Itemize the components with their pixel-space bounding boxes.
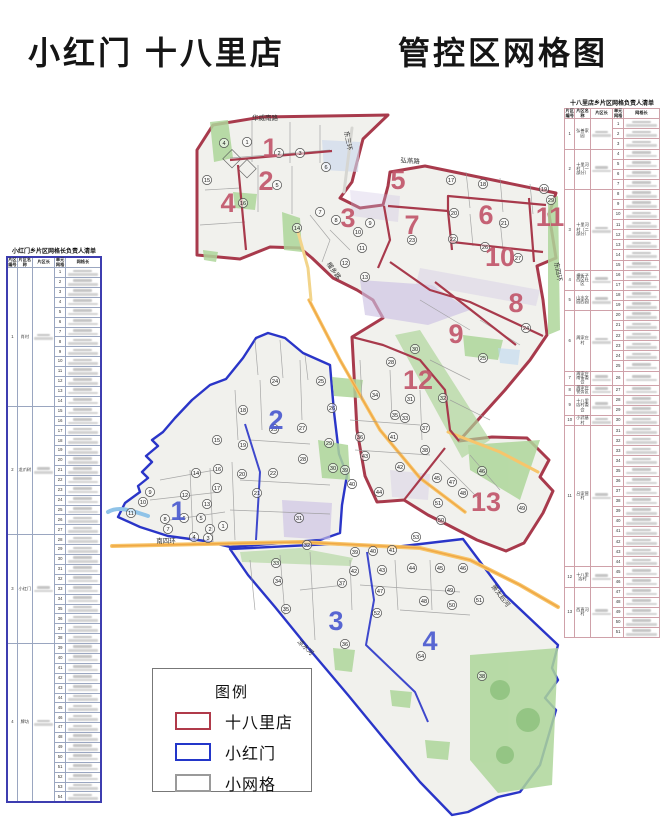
redacted-phone [626, 623, 657, 626]
map-label: 14 [294, 226, 300, 232]
table-row: 9十八里店村委会28 [565, 395, 660, 405]
unit-grid-number-cell: 36 [613, 476, 623, 486]
redacted-phone [626, 185, 657, 188]
grid-leader-cell [623, 149, 659, 159]
map-label: 31 [407, 397, 413, 403]
redacted-phone [68, 738, 98, 741]
redacted-phone [592, 134, 612, 137]
grid-leader-cell [623, 628, 659, 638]
redacted-phone [68, 560, 98, 563]
redacted-phone [68, 797, 98, 800]
map-label: 3 [206, 536, 209, 542]
redacted-name [73, 467, 92, 470]
grid-leader-cell [65, 634, 101, 644]
redacted-name [73, 596, 92, 599]
xiaohongmen-grid-leader-table: 小红门乡片区网格长负责人清单 片区编号片区名称片区长单元网格网格长1肖村1234… [6, 246, 102, 803]
grid-leader-cell [623, 220, 659, 230]
unit-grid-number-cell: 11 [55, 367, 65, 377]
grid-leader-cell [623, 486, 659, 496]
redacted-phone [68, 718, 98, 721]
redacted-phone [626, 144, 657, 147]
grid-leader-cell [65, 475, 101, 485]
redacted-phone [626, 155, 657, 158]
grid-leader-cell [65, 337, 101, 347]
redacted-name [73, 517, 92, 520]
redacted-name [73, 299, 92, 302]
unit-grid-number-cell: 22 [55, 475, 65, 485]
unit-grid-number-cell: 4 [55, 297, 65, 307]
redacted-name [632, 343, 651, 346]
map-label: 17 [214, 486, 220, 492]
map-label: 1 [221, 524, 224, 530]
redacted-name [632, 212, 651, 215]
map-label: 2 [268, 405, 283, 435]
redacted-phone [626, 573, 657, 576]
small-grid-swatch-icon [175, 774, 211, 792]
zone-leader-cell [590, 426, 613, 567]
column-header: 网格长 [65, 257, 101, 268]
redacted-phone [626, 532, 657, 535]
redacted-phone [68, 412, 98, 415]
zone-name-cell: 十八里店村 [575, 567, 590, 587]
legend-item-small-grid: 小网格 [175, 771, 311, 795]
zone-leader-cell [32, 644, 55, 803]
unit-grid-number-cell: 1 [55, 268, 65, 278]
redacted-name [37, 334, 50, 337]
grid-leader-cell [65, 525, 101, 535]
redacted-phone [626, 235, 657, 238]
redacted-phone [68, 362, 98, 365]
redacted-phone [68, 313, 98, 316]
grid-leader-cell [65, 752, 101, 762]
redacted-phone [626, 225, 657, 228]
redacted-name [632, 549, 651, 552]
redacted-phone [626, 461, 657, 464]
grid-leader-cell [65, 762, 101, 772]
redacted-name [632, 559, 651, 562]
redacted-name [632, 387, 651, 390]
unit-grid-number-cell: 51 [55, 762, 65, 772]
zone-number-cell: 12 [565, 567, 575, 587]
redacted-name [73, 329, 92, 332]
grid-leader-cell [65, 386, 101, 396]
redacted-name [595, 277, 608, 280]
redacted-name [595, 297, 608, 300]
grid-leader-cell [623, 240, 659, 250]
zone-number-cell: 6 [565, 311, 575, 372]
map-label: 27 [515, 256, 521, 262]
map-label: 22 [270, 471, 276, 477]
redacted-phone [34, 337, 53, 340]
redacted-name [73, 309, 92, 312]
map-label: 40 [370, 549, 376, 555]
table-row: 13西直河村47 [565, 587, 660, 597]
zone-number-cell: 1 [7, 268, 17, 406]
redacted-phone [626, 512, 657, 515]
map-label: 8 [334, 218, 337, 224]
table-row: 4牌坊39 [7, 644, 101, 654]
map-label: 20 [451, 211, 457, 217]
zone-number-cell: 9 [565, 395, 575, 415]
redacted-name [632, 222, 651, 225]
table-row: 3小红门28 [7, 535, 101, 545]
grid-leader-table: 片区编号片区名称片区长单元网格网格长1弘善家园1232十里河村（一部分）4567… [564, 108, 660, 638]
redacted-phone [626, 472, 657, 475]
redacted-name [632, 458, 651, 461]
map-label: 35 [392, 413, 398, 419]
redacted-phone [626, 306, 657, 309]
redacted-phone [68, 333, 98, 336]
zone-name-cell: 小红门 [17, 535, 32, 644]
map-label: 46 [479, 469, 485, 475]
grid-leader-cell [623, 311, 659, 321]
unit-grid-number-cell: 41 [613, 527, 623, 537]
zone-leader-cell [590, 189, 613, 270]
unit-grid-number-cell: 31 [613, 426, 623, 436]
zone-number-cell: 4 [7, 644, 17, 803]
unit-grid-number-cell: 32 [613, 436, 623, 446]
grid-leader-cell [65, 446, 101, 456]
redacted-phone [68, 778, 98, 781]
redacted-phone [626, 346, 657, 349]
redacted-phone [626, 245, 657, 248]
map-label: 20 [239, 472, 245, 478]
redacted-phone [68, 501, 98, 504]
redacted-name [632, 323, 651, 326]
table-row: 8周家庄警务区27 [565, 385, 660, 395]
unit-grid-number-cell: 35 [55, 604, 65, 614]
unit-grid-number-cell: 47 [613, 587, 623, 597]
redacted-phone [68, 273, 98, 276]
unit-grid-number-cell: 6 [613, 169, 623, 179]
redacted-phone [68, 342, 98, 345]
map-label: 45 [434, 476, 440, 482]
redacted-phone [626, 401, 657, 404]
unit-grid-number-cell: 44 [613, 557, 623, 567]
map-label: 6 [324, 165, 327, 171]
redacted-phone [68, 550, 98, 553]
redacted-name [37, 720, 50, 723]
zone-name-cell: 西直河村 [575, 587, 590, 637]
grid-leader-cell [65, 564, 101, 574]
redacted-name [73, 319, 92, 322]
redacted-phone [626, 286, 657, 289]
redacted-name [73, 527, 92, 530]
map-label: 15 [204, 178, 210, 184]
redacted-phone [68, 689, 98, 692]
unit-grid-number-cell: 26 [613, 371, 623, 385]
unit-grid-number-cell: 29 [55, 545, 65, 555]
redacted-phone [68, 352, 98, 355]
grid-leader-cell [65, 624, 101, 634]
redacted-name [632, 242, 651, 245]
unit-grid-number-cell: 20 [55, 456, 65, 466]
unit-grid-number-cell: 48 [613, 597, 623, 607]
redacted-phone [68, 461, 98, 464]
map-label: 1 [262, 133, 277, 163]
redacted-name [73, 636, 92, 639]
redacted-name [632, 488, 651, 491]
zone-name-cell: 牌坊 [17, 644, 32, 803]
title-township-names: 小红门 十八里店 [28, 28, 285, 74]
grid-leader-cell [65, 584, 101, 594]
redacted-phone [68, 491, 98, 494]
map-label: 4 [192, 535, 195, 541]
unit-grid-number-cell: 13 [613, 240, 623, 250]
redacted-name [73, 388, 92, 391]
unit-grid-number-cell: 28 [613, 395, 623, 405]
redacted-phone [68, 323, 98, 326]
grid-leader-cell [623, 159, 659, 169]
grid-leader-cell [623, 395, 659, 405]
redacted-name [632, 428, 651, 431]
unit-grid-number-cell: 45 [55, 703, 65, 713]
map-label: 34 [372, 393, 378, 399]
unit-grid-number-cell: 23 [613, 341, 623, 351]
map-label: 31 [296, 516, 302, 522]
redacted-phone [68, 481, 98, 484]
grid-leader-cell [65, 742, 101, 752]
map-label: 18 [240, 408, 246, 414]
grid-leader-cell [623, 617, 659, 627]
map-label: 25 [318, 379, 324, 385]
map-label: 9 [368, 221, 371, 227]
map-label: 42 [397, 465, 403, 471]
column-header: 片区编号 [565, 109, 575, 119]
redacted-name [73, 547, 92, 550]
redacted-name [632, 579, 651, 582]
zone-name-cell: 十八里店村委会 [575, 395, 590, 415]
zone-number-cell: 8 [565, 385, 575, 395]
map-label: 22 [450, 237, 456, 243]
grid-leader-cell [623, 210, 659, 220]
map-label: 36 [342, 642, 348, 648]
unit-grid-number-cell: 34 [55, 594, 65, 604]
redacted-name [37, 586, 50, 589]
map-label: 19 [541, 187, 547, 193]
grid-leader-cell [65, 485, 101, 495]
zone-number-cell: 13 [565, 587, 575, 637]
redacted-name [73, 349, 92, 352]
grid-leader-cell [65, 268, 101, 278]
table-row: 6周家庄村20 [565, 311, 660, 321]
table-row: 11吕家营村31 [565, 426, 660, 436]
redacted-name [632, 363, 651, 366]
grid-leader-cell [623, 361, 659, 371]
map-label: 4 [422, 626, 437, 656]
redacted-phone [68, 451, 98, 454]
unit-grid-number-cell: 38 [613, 496, 623, 506]
unit-grid-number-cell: 12 [55, 377, 65, 387]
map-label: 35 [283, 607, 289, 613]
map-label: 29 [326, 441, 332, 447]
redacted-phone [68, 570, 98, 573]
redacted-name [632, 407, 651, 410]
redacted-name [632, 302, 651, 305]
unit-grid-number-cell: 42 [55, 673, 65, 683]
unit-grid-number-cell: 49 [613, 607, 623, 617]
map-label: 51 [476, 598, 482, 604]
map-label: 33 [402, 416, 408, 422]
map-label: 3 [328, 606, 343, 636]
redacted-phone [68, 728, 98, 731]
redacted-phone [592, 230, 612, 233]
unit-grid-number-cell: 49 [55, 742, 65, 752]
zone-number-cell: 3 [565, 189, 575, 270]
redacted-name [73, 507, 92, 510]
redacted-phone [34, 723, 53, 726]
unit-grid-number-cell: 20 [613, 311, 623, 321]
zone-number-cell: 5 [565, 290, 575, 310]
grid-leader-cell [65, 535, 101, 545]
map-label: 24 [272, 379, 278, 385]
unit-grid-number-cell: 50 [55, 752, 65, 762]
redacted-name [73, 764, 92, 767]
redacted-name [73, 537, 92, 540]
redacted-name [73, 497, 92, 500]
redacted-name [73, 675, 92, 678]
unit-grid-number-cell: 40 [613, 517, 623, 527]
redacted-name [595, 493, 608, 496]
redacted-phone [68, 787, 98, 790]
zone-number-cell: 2 [7, 406, 17, 535]
grid-leader-cell [65, 713, 101, 723]
redacted-phone [68, 639, 98, 642]
unit-grid-number-cell: 38 [55, 634, 65, 644]
unit-grid-number-cell: 21 [55, 466, 65, 476]
unit-grid-number-cell: 43 [55, 683, 65, 693]
map-label: 37 [422, 426, 428, 432]
redacted-phone [626, 296, 657, 299]
grid-leader-cell [623, 270, 659, 280]
grid-leader-cell [623, 607, 659, 617]
redacted-name [595, 166, 608, 169]
map-label: 11 [536, 202, 565, 232]
zone-number-cell: 4 [565, 270, 575, 290]
grid-leader-cell [65, 703, 101, 713]
grid-leader-cell [623, 179, 659, 189]
map-label: 15 [214, 438, 220, 444]
unit-grid-number-cell: 13 [55, 386, 65, 396]
redacted-name [73, 725, 92, 728]
unit-grid-number-cell: 5 [613, 159, 623, 169]
map-label: 41 [390, 435, 396, 441]
redacted-phone [592, 379, 612, 382]
grid-leader-cell [623, 300, 659, 310]
unit-grid-number-cell: 24 [613, 351, 623, 361]
grid-leader-cell [65, 594, 101, 604]
unit-grid-number-cell: 4 [613, 149, 623, 159]
grid-leader-cell [623, 577, 659, 587]
zone-leader-cell [590, 311, 613, 372]
redacted-name [73, 715, 92, 718]
map-label: 14 [193, 471, 199, 477]
column-header: 单元网格 [613, 109, 623, 119]
grid-leader-cell [65, 683, 101, 693]
redacted-name [632, 438, 651, 441]
title-map-type: 管控区网格图 [398, 28, 608, 74]
xiaohongmen-swatch-icon [175, 743, 211, 761]
unit-grid-number-cell: 7 [613, 179, 623, 189]
unit-grid-number-cell: 18 [613, 290, 623, 300]
redacted-phone [626, 431, 657, 434]
zone-leader-cell [590, 567, 613, 587]
zone-leader-cell [590, 395, 613, 415]
zone-name-cell: 弘善家园 [575, 119, 590, 149]
zone-leader-cell [590, 587, 613, 637]
redacted-phone [626, 482, 657, 485]
redacted-name [632, 181, 651, 184]
map-label: 17 [448, 178, 454, 184]
redacted-phone [626, 379, 657, 382]
grid-leader-cell [623, 547, 659, 557]
redacted-phone [68, 372, 98, 375]
grid-leader-cell [65, 693, 101, 703]
grid-leader-cell [65, 426, 101, 436]
zone-name-cell: 周家庄村 [575, 311, 590, 372]
redacted-name [632, 151, 651, 154]
redacted-phone [626, 215, 657, 218]
map-label: 弘燕路 [400, 155, 421, 165]
redacted-phone [626, 492, 657, 495]
redacted-name [73, 784, 92, 787]
unit-grid-number-cell: 41 [55, 663, 65, 673]
zone-leader-cell [590, 385, 613, 395]
unit-grid-number-cell: 52 [55, 772, 65, 782]
redacted-name [632, 121, 651, 124]
redacted-phone [68, 471, 98, 474]
redacted-name [632, 468, 651, 471]
unit-grid-number-cell: 16 [613, 270, 623, 280]
map-label: 34 [275, 579, 281, 585]
grid-leader-cell [623, 405, 659, 415]
grid-leader-cell [65, 515, 101, 525]
redacted-phone [626, 336, 657, 339]
map-label: 11 [128, 511, 134, 517]
grid-leader-cell [65, 604, 101, 614]
grid-leader-cell [65, 317, 101, 327]
map-label: 10 [355, 230, 361, 236]
unit-grid-number-cell: 46 [613, 577, 623, 587]
map-label: 2 [277, 151, 280, 157]
redacted-name [632, 478, 651, 481]
map-label: 38 [422, 448, 428, 454]
table-row: 4横街子西区社区16 [565, 270, 660, 280]
redacted-phone [68, 679, 98, 682]
redacted-name [73, 586, 92, 589]
map-label: 42 [351, 569, 357, 575]
redacted-name [595, 387, 608, 390]
unit-grid-number-cell: 46 [55, 713, 65, 723]
redacted-phone [626, 613, 657, 616]
map-label: 3 [340, 203, 355, 233]
zone-number-cell: 3 [7, 535, 17, 644]
map-label: 27 [299, 426, 305, 432]
redacted-phone [68, 283, 98, 286]
unit-grid-number-cell: 26 [55, 515, 65, 525]
redacted-phone [626, 367, 657, 370]
redacted-name [632, 262, 651, 265]
redacted-name [73, 457, 92, 460]
redacted-phone [592, 497, 612, 500]
unit-grid-number-cell: 23 [55, 485, 65, 495]
redacted-phone [626, 356, 657, 359]
unit-grid-number-cell: 25 [55, 505, 65, 515]
legend-label: 小红门 [225, 740, 276, 764]
redacted-name [73, 438, 92, 441]
zone-number-cell: 2 [565, 149, 575, 189]
zone-name-cell: 周家庄南街委会 [575, 371, 590, 385]
